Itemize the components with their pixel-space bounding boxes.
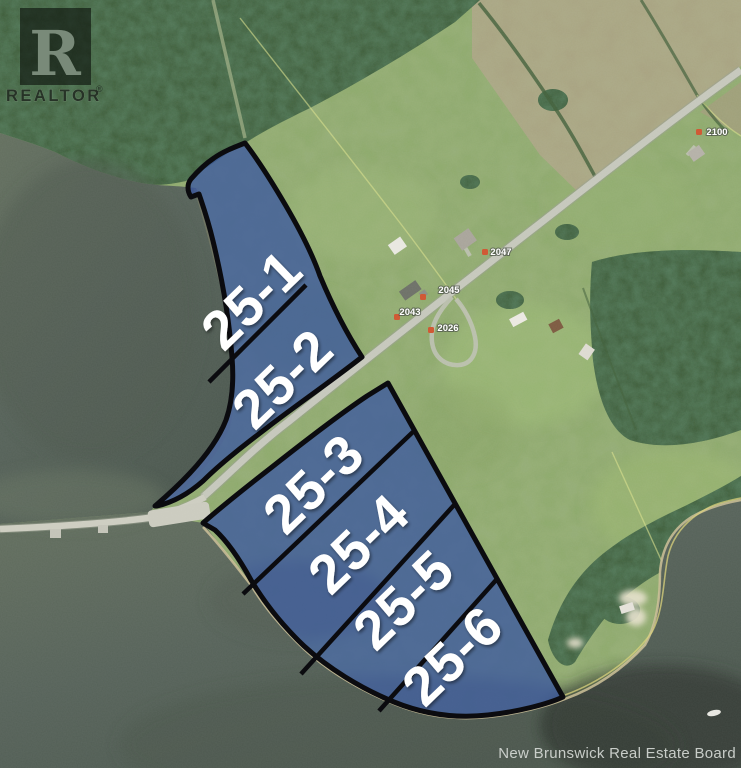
address-label: 2043 bbox=[399, 307, 420, 318]
address-label: 2026 bbox=[437, 323, 458, 334]
address-marker-icon bbox=[696, 129, 702, 135]
listing-photo: 25-1 25-2 25-3 25-4 25-5 25-6 2100 2047 … bbox=[0, 0, 741, 768]
registered-trademark-symbol: ® bbox=[96, 84, 103, 94]
address-label: 2045 bbox=[438, 285, 460, 296]
realtor-r-icon: R bbox=[29, 17, 81, 90]
realtor-logo: R REALTOR ® bbox=[6, 8, 103, 105]
watermark-board-name: New Brunswick Real Estate Board bbox=[498, 745, 736, 762]
address-label: 2100 bbox=[706, 127, 727, 138]
aerial-map-canvas: 25-1 25-2 25-3 25-4 25-5 25-6 2100 2047 … bbox=[0, 0, 741, 768]
address-marker-icon bbox=[420, 294, 426, 300]
address-marker-icon bbox=[482, 249, 488, 255]
address-label: 2047 bbox=[490, 247, 511, 258]
realtor-wordmark: REALTOR bbox=[6, 87, 102, 105]
address-marker-icon bbox=[428, 327, 434, 333]
